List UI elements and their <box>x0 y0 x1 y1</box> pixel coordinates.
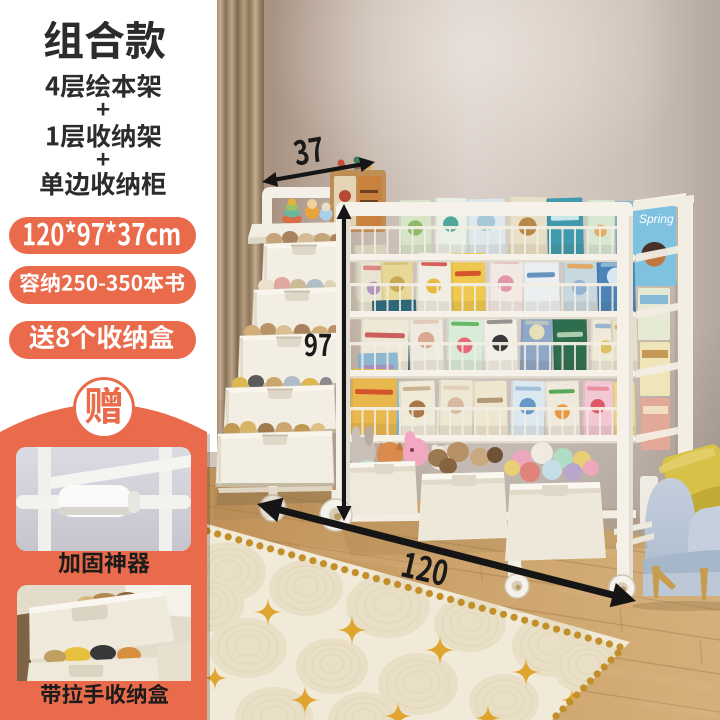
svg-text:Spring: Spring <box>639 212 674 226</box>
